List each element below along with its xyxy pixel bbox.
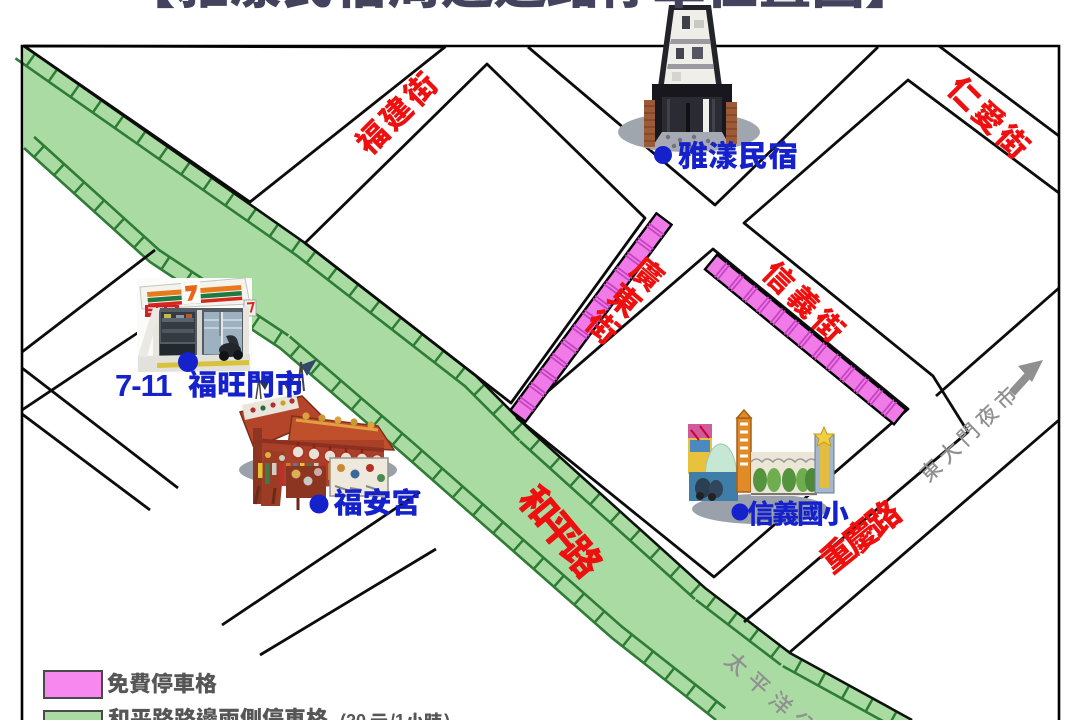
svg-text:(20: (20 — [340, 711, 366, 720]
svg-text:7-11: 7-11 — [115, 368, 172, 403]
svg-text:/1: /1 — [390, 711, 405, 720]
svg-text:): ) — [444, 711, 450, 720]
